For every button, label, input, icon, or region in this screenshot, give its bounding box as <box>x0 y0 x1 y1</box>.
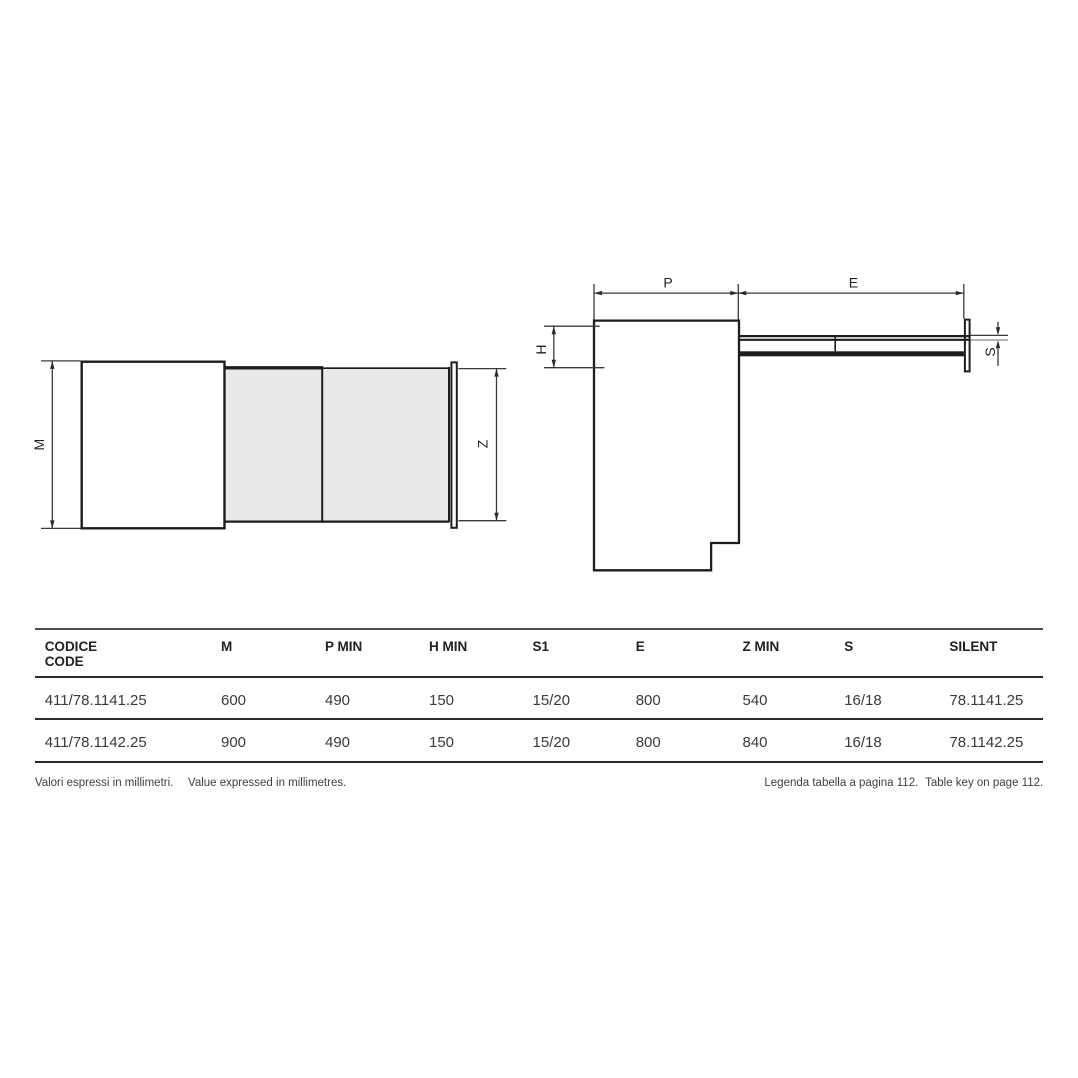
svg-text:M: M <box>31 439 47 451</box>
svg-text:Z: Z <box>475 439 491 448</box>
svg-text:E: E <box>849 275 858 291</box>
svg-text:P: P <box>663 275 672 291</box>
svg-text:S: S <box>982 347 998 356</box>
svg-text:H: H <box>533 345 549 355</box>
